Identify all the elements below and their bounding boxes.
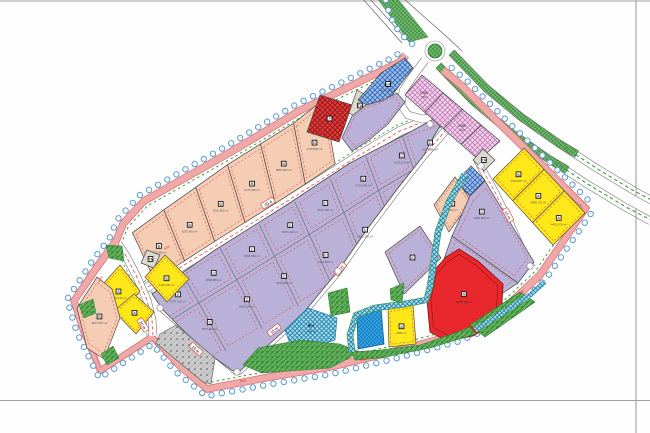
svg-text:C: C [289,224,292,228]
svg-text:4213.980 m²: 4213.980 m² [422,148,438,152]
svg-text:8900.150 m²: 8900.150 m² [239,304,255,308]
svg-text:DSB: DSB [458,124,466,128]
svg-text:C: C [324,202,327,206]
svg-text:6179.340 m²: 6179.340 m² [244,188,260,192]
svg-text:4024: 4024 [421,95,427,99]
svg-text:3913.460 m²: 3913.460 m² [380,89,396,93]
svg-text:4034.007 m²: 4034.007 m² [511,179,527,183]
svg-text:Ş: Ş [165,277,168,281]
svg-text:7418.660 m²: 7418.660 m² [318,260,334,264]
svg-text:DSB: DSB [420,91,428,95]
svg-text:TA: TA [482,159,487,163]
svg-text:1768 m²: 1768 m² [306,330,316,334]
svg-text:8.50: 8.50 [240,379,246,383]
svg-text:TA: TA [148,258,153,262]
svg-text:B: B [282,162,285,166]
svg-text:9537.960 m²: 9537.960 m² [202,327,218,331]
svg-text:B: B [219,203,222,207]
svg-text:A: A [557,217,560,221]
svg-text:İBA: İBA [308,323,315,328]
svg-text:9806.880 m²: 9806.880 m² [206,278,222,282]
svg-text:B: B [188,223,191,227]
svg-text:5651.330 m²: 5651.330 m² [357,235,373,239]
svg-text:B: B [313,141,316,145]
svg-text:A: A [517,173,520,177]
svg-text:4135.350 m²: 4135.350 m² [159,283,175,287]
svg-text:3222.950 m²: 3222.950 m² [213,208,229,212]
svg-text:C: C [362,177,365,181]
svg-text:İHA: İHA [385,82,392,87]
svg-text:B: B [463,292,466,296]
svg-text:C: C [246,298,249,302]
svg-text:C: C [251,248,254,252]
svg-text:8974.120 m²: 8974.120 m² [282,230,298,234]
svg-text:6612.300 m²: 6612.300 m² [317,208,333,212]
svg-text:C: C [283,275,286,279]
svg-text:C: C [364,228,367,232]
svg-text:5723.940 m²: 5723.940 m² [355,184,371,188]
svg-text:A: A [117,290,120,294]
svg-text:A: A [400,325,403,329]
svg-text:C: C [400,154,403,158]
svg-text:B: B [98,315,101,319]
svg-text:4024: 4024 [459,128,465,132]
svg-text:TA: TA [358,104,363,108]
svg-text:C: C [177,293,180,297]
svg-text:8032.540 m²: 8032.540 m² [276,281,292,285]
svg-text:3998.170 m²: 3998.170 m² [531,200,547,204]
svg-text:A: A [133,311,136,315]
svg-text:3887.950 m²: 3887.950 m² [276,168,292,172]
svg-text:C: C [480,210,483,214]
svg-text:C: C [208,321,211,325]
svg-text:C: C [212,271,215,275]
svg-text:A: A [537,195,540,199]
svg-text:4778.860 m²: 4778.860 m² [307,147,323,151]
svg-text:C: C [429,141,432,145]
svg-text:4431.470 m²: 4431.470 m² [551,222,567,226]
svg-text:6757.210 m²: 6757.210 m² [170,299,186,303]
svg-text:5007.997 m²: 5007.997 m² [92,321,108,325]
svg-text:4026 m²: 4026 m² [396,331,406,335]
svg-text:4294.300 m²: 4294.300 m² [474,216,490,220]
svg-text:B: B [158,245,161,249]
svg-text:C: C [411,256,414,260]
svg-text:8598.560 m²: 8598.560 m² [244,254,260,258]
svg-text:C: C [324,254,327,258]
svg-text:13456.022 m²: 13456.022 m² [455,300,472,304]
svg-text:6179.250 m²: 6179.250 m² [394,161,410,165]
svg-text:6237.990 m²: 6237.990 m² [182,229,198,233]
